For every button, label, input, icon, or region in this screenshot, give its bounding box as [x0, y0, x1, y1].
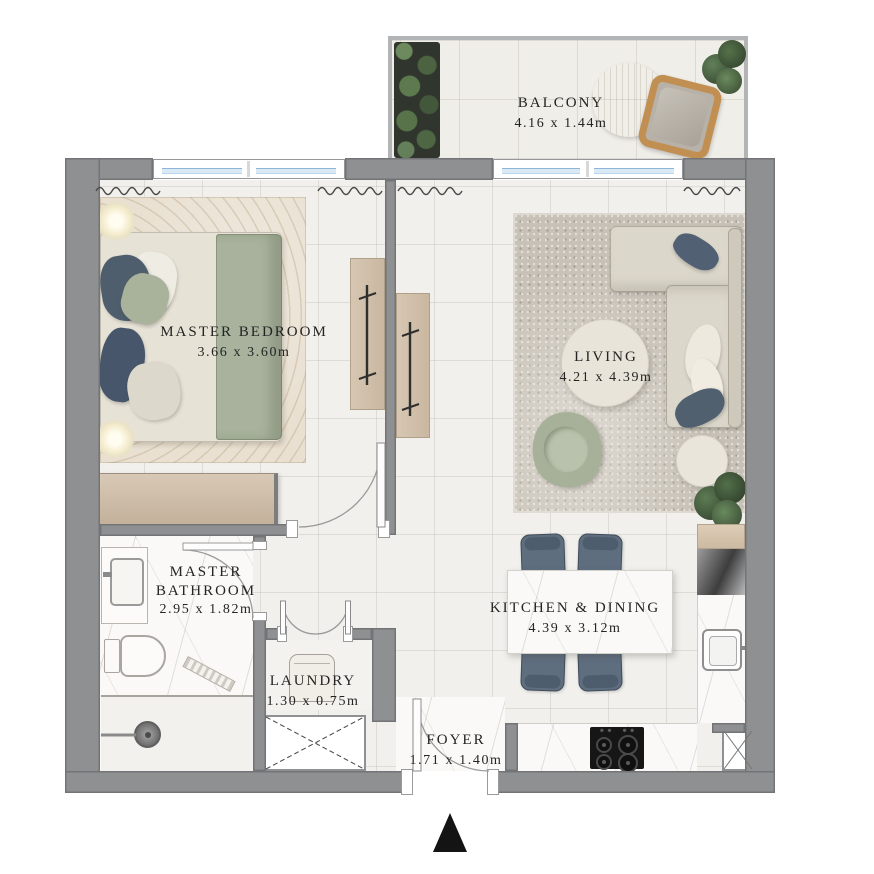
room-label-living: LIVING 4.21 x 4.39m [559, 348, 652, 386]
room-dims: 4.21 x 4.39m [559, 370, 652, 386]
room-name: BALCONY [514, 94, 607, 113]
curtain-squiggle-icon [318, 188, 382, 195]
bathroom-door-leaf [183, 543, 253, 550]
room-dims: 4.16 x 1.44m [514, 116, 607, 132]
room-dims: 3.66 x 3.60m [160, 345, 328, 361]
room-dims: 1.71 x 1.40m [409, 753, 502, 769]
room-label-laundry: LAUNDRY 1.30 x 0.75m [266, 672, 359, 710]
laundry-door-leaf [346, 601, 351, 634]
room-label-master-bedroom: MASTER BEDROOM 3.66 x 3.60m [160, 323, 328, 361]
shaft-cross-icon [266, 717, 364, 769]
room-label-balcony: BALCONY 4.16 x 1.44m [514, 94, 607, 132]
laundry-door-swing [316, 602, 349, 635]
bedroom-door-leaf [377, 443, 385, 527]
room-name: MASTER BATHROOM [140, 563, 272, 601]
shaft-cross-icon [724, 731, 752, 769]
north-arrow-icon [433, 813, 467, 852]
curtain-squiggle-icon [96, 188, 160, 195]
laundry-door-swing [283, 602, 316, 635]
room-label-kitchen-dining: KITCHEN & DINING 4.39 x 3.12m [490, 599, 660, 637]
floor-plan: BALCONY 4.16 x 1.44m MASTER BEDROOM 3.66… [0, 0, 874, 874]
curtain-squiggle-icon [684, 188, 740, 195]
room-name: MASTER BEDROOM [160, 323, 328, 342]
curtain-squiggle-icon [398, 188, 462, 195]
room-name: LIVING [559, 348, 652, 367]
room-label-foyer: FOYER 1.71 x 1.40m [409, 731, 502, 769]
room-name: FOYER [409, 731, 502, 750]
room-label-master-bathroom: MASTER BATHROOM 2.95 x 1.82m [140, 563, 272, 618]
room-name: LAUNDRY [266, 672, 359, 691]
room-name: KITCHEN & DINING [490, 599, 660, 618]
room-dims: 1.30 x 0.75m [266, 694, 359, 710]
bedroom-door-swing [299, 445, 381, 527]
laundry-door-leaf [281, 601, 286, 634]
room-dims: 4.39 x 3.12m [490, 621, 660, 637]
room-dims: 2.95 x 1.82m [140, 602, 272, 618]
